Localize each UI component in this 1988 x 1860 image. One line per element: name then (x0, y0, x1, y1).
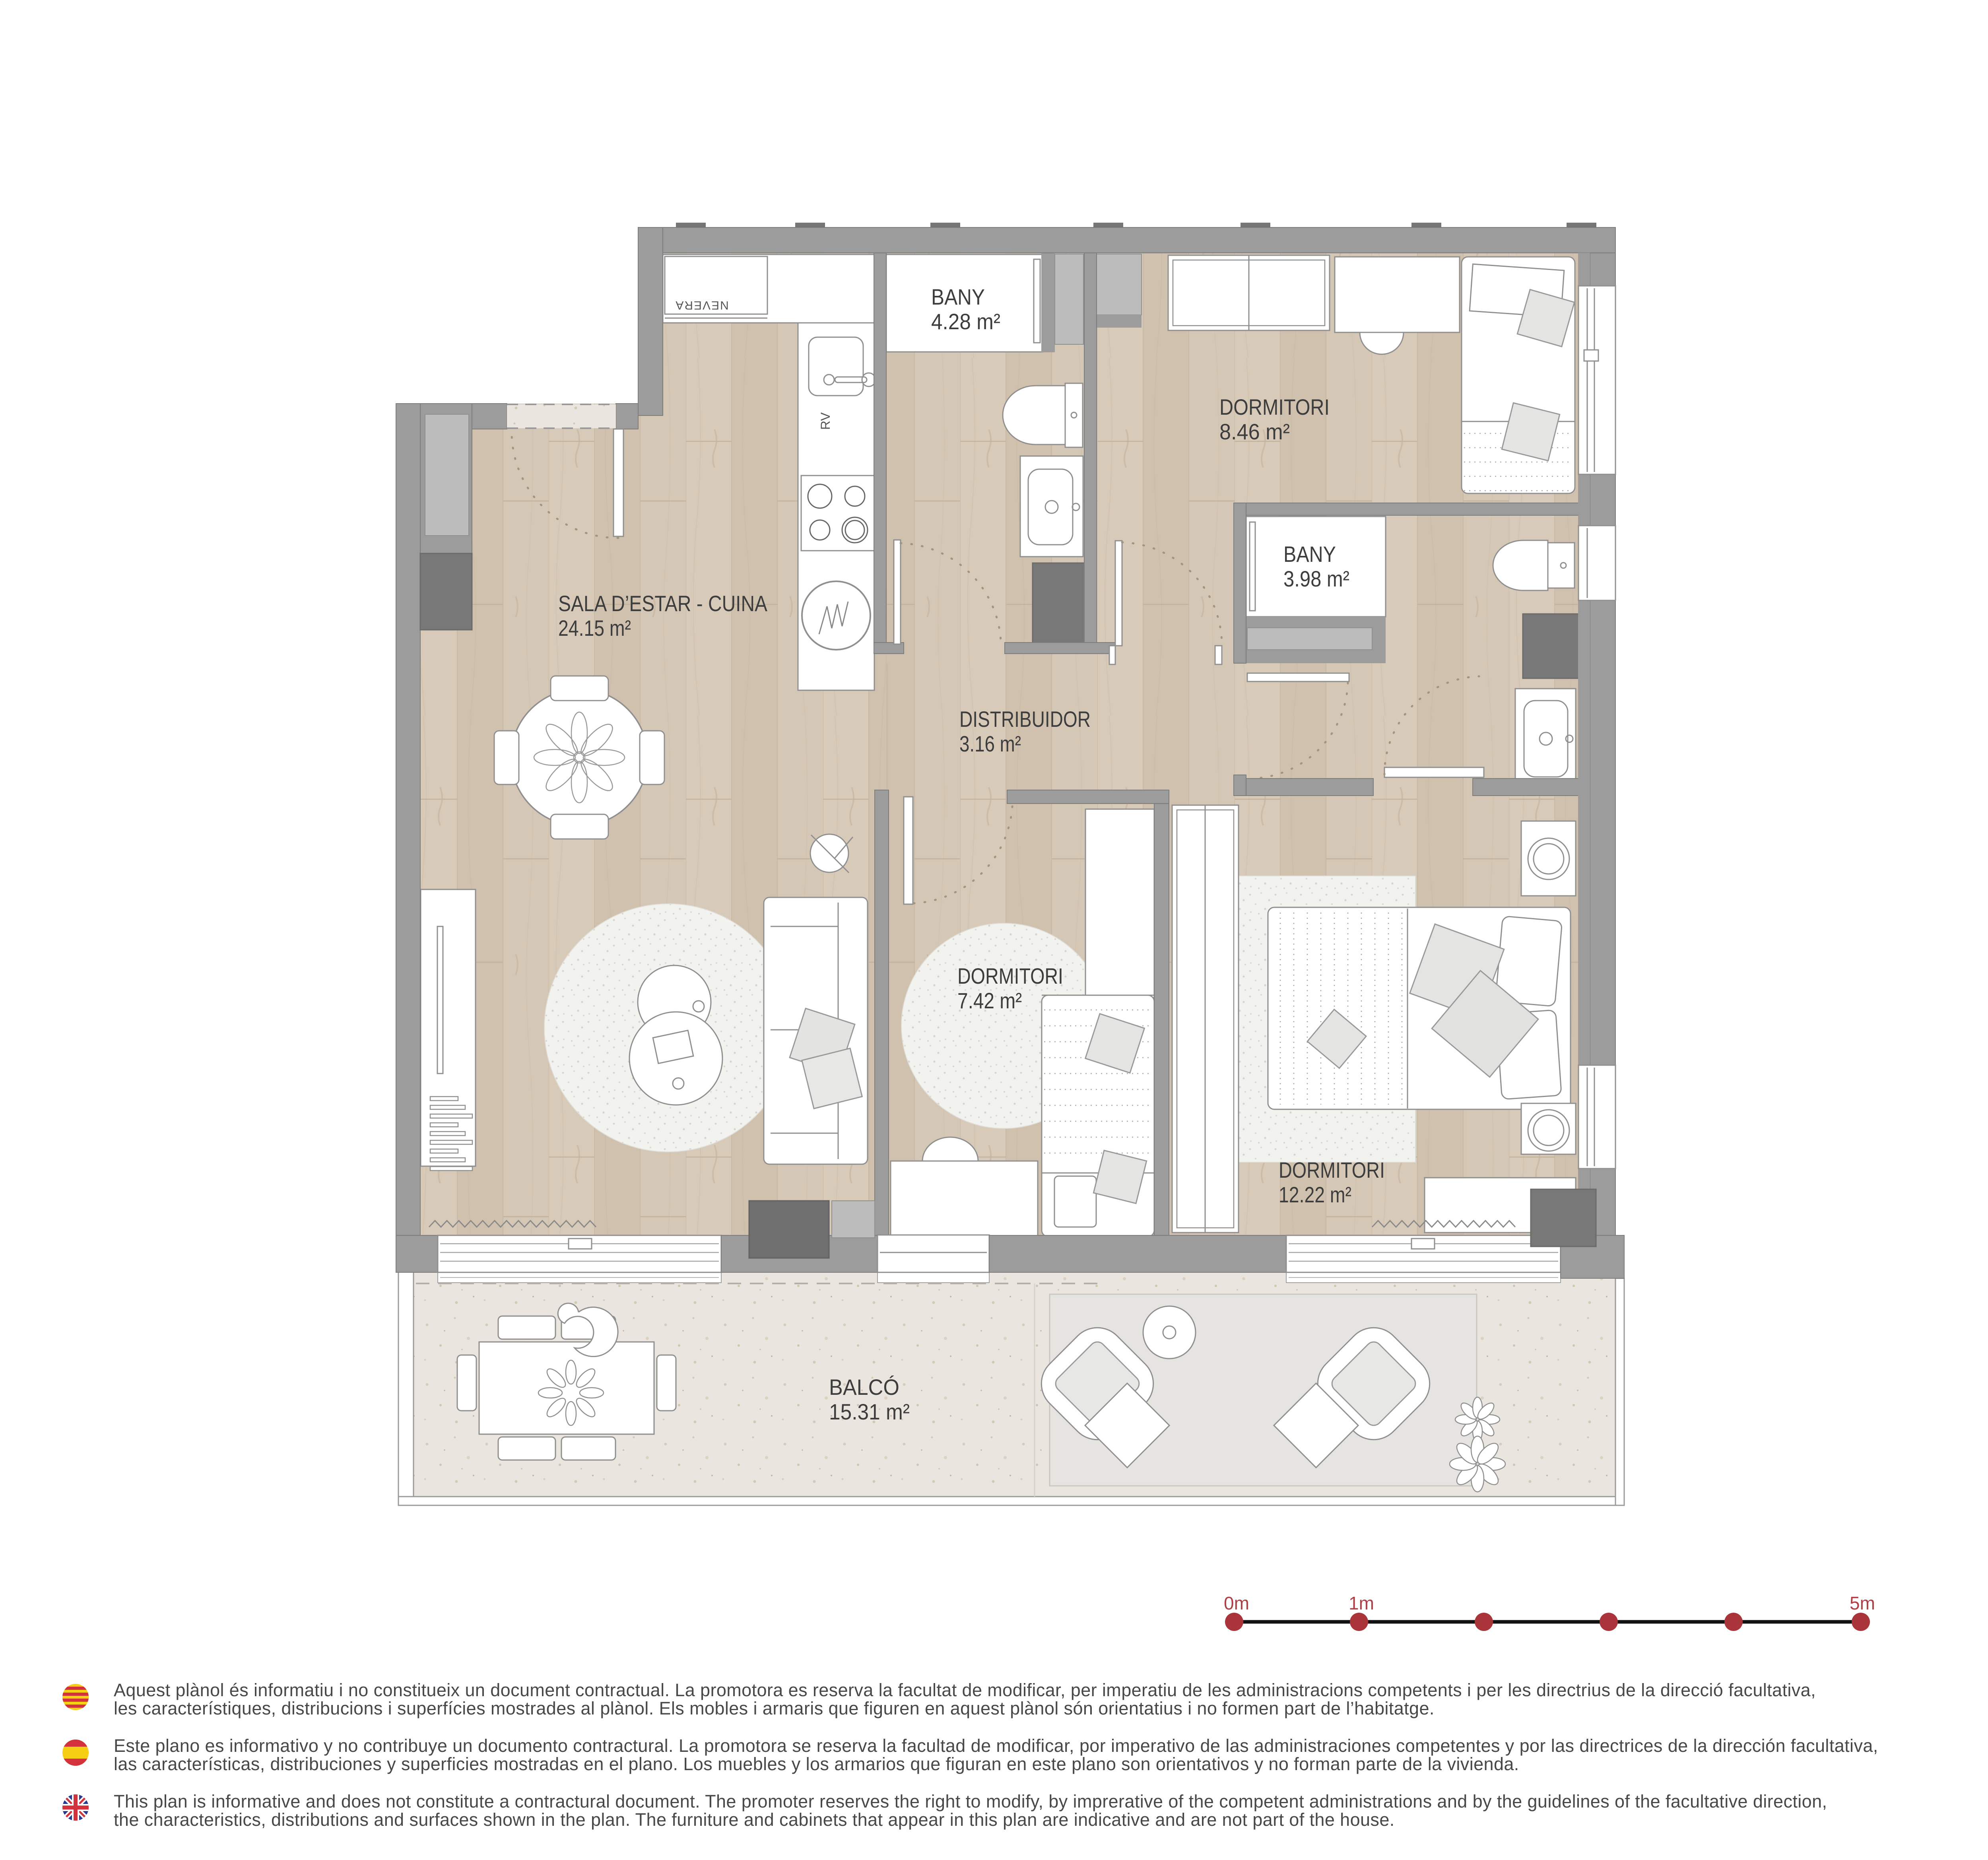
svg-text:BALCÓ: BALCÓ (829, 1375, 899, 1400)
svg-text:This plan is informative and d: This plan is informative and does not co… (114, 1791, 1827, 1811)
svg-text:0m: 0m (1224, 1593, 1249, 1613)
svg-text:las características, distribuc: las características, distribuciones y su… (114, 1754, 1519, 1774)
svg-text:DORMITORI: DORMITORI (1279, 1157, 1385, 1182)
svg-text:les característiques, distribu: les característiques, distribucions i su… (114, 1698, 1435, 1718)
svg-text:3.98 m²: 3.98 m² (1283, 566, 1349, 591)
svg-text:15.31 m²: 15.31 m² (829, 1399, 910, 1424)
svg-text:RV: RV (818, 412, 833, 430)
svg-text:BANY: BANY (1283, 542, 1336, 567)
svg-text:Aquest plànol és informatiu i: Aquest plànol és informatiu i no constit… (114, 1680, 1816, 1700)
svg-text:1m: 1m (1349, 1593, 1374, 1613)
svg-text:BANY: BANY (931, 284, 985, 309)
svg-text:4.28 m²: 4.28 m² (931, 309, 1000, 334)
svg-text:the characteristics, distribut: the characteristics, distributions and s… (114, 1810, 1395, 1830)
svg-text:DISTRIBUIDOR: DISTRIBUIDOR (959, 707, 1091, 732)
svg-text:5m: 5m (1850, 1593, 1875, 1613)
svg-text:DORMITORI: DORMITORI (1219, 394, 1330, 419)
svg-text:DORMITORI: DORMITORI (957, 963, 1063, 988)
svg-text:3.16 m²: 3.16 m² (959, 731, 1021, 756)
svg-text:24.15 m²: 24.15 m² (558, 615, 631, 641)
svg-text:Este plano es informativo y no: Este plano es informativo y no contribuy… (114, 1736, 1878, 1756)
svg-text:8.46 m²: 8.46 m² (1219, 419, 1290, 444)
svg-text:7.42 m²: 7.42 m² (957, 988, 1022, 1013)
svg-text:NEVERA: NEVERA (675, 299, 728, 312)
svg-text:12.22 m²: 12.22 m² (1279, 1182, 1351, 1207)
svg-text:SALA D’ESTAR - CUINA: SALA D’ESTAR - CUINA (558, 591, 768, 616)
